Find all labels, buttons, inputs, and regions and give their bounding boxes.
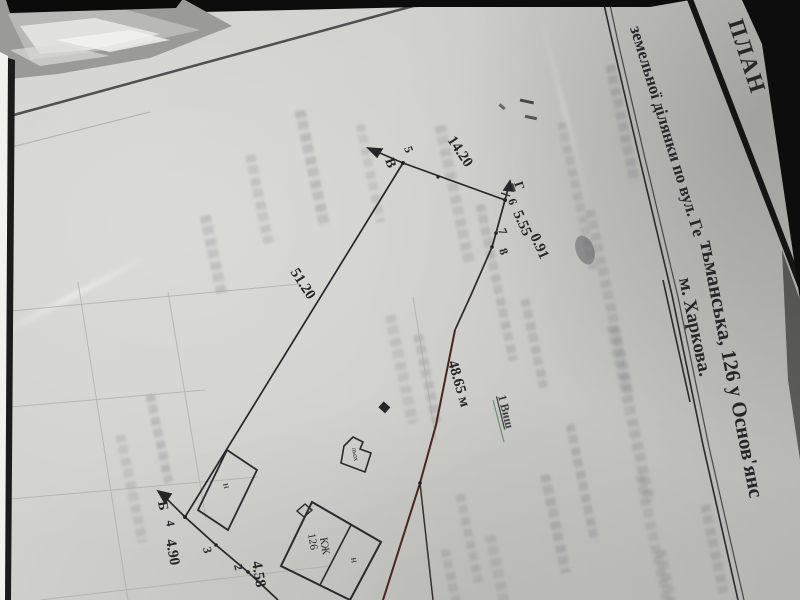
black-corner-top-right	[742, 0, 800, 300]
foil-crinkle	[0, 0, 232, 80]
photo-frame-layer	[0, 0, 800, 600]
photo-of-land-plan: ПЛАН земельної ділянки по вул. Ге тьманс…	[0, 0, 800, 600]
